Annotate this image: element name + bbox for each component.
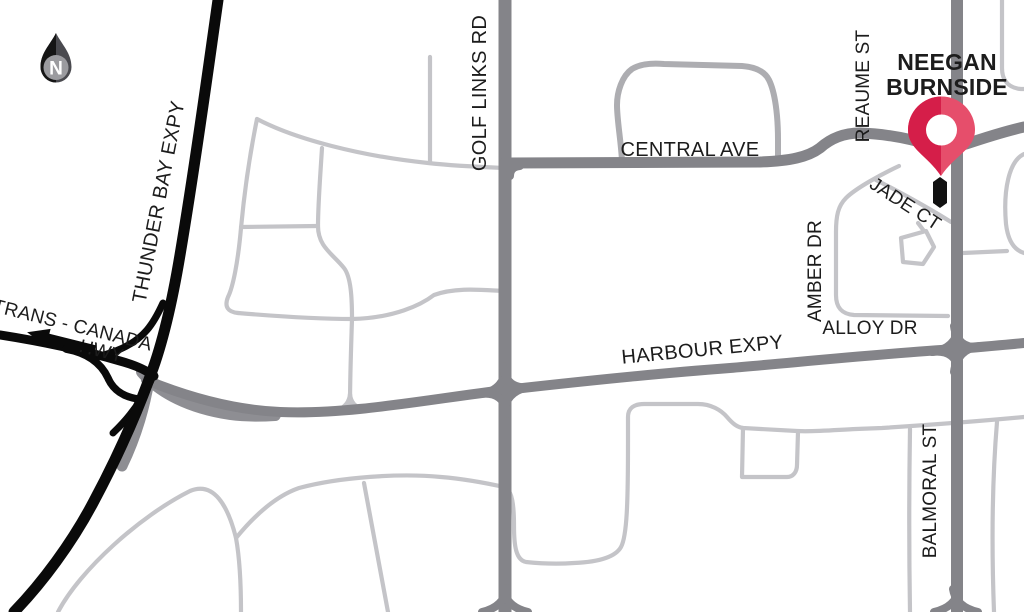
street-block-top xyxy=(257,119,504,168)
road-harbour-expy xyxy=(146,343,1024,412)
location-pin xyxy=(908,96,975,208)
street-se-rect xyxy=(742,428,798,477)
compass-letter: N xyxy=(49,59,63,80)
road-thunder-bay-expy xyxy=(14,0,218,612)
street-se-vert2 xyxy=(993,422,997,612)
label-reaume-st: REAUME ST xyxy=(853,29,874,142)
street-sw-c xyxy=(364,483,388,612)
label-golf-links-rd: GOLF LINKS RD xyxy=(469,15,491,171)
map-canvas: N THUNDER BAY EXPY TRANS - CANADA HWY GO… xyxy=(0,0,1024,612)
street-ne-curve xyxy=(1005,154,1024,253)
street-block-left xyxy=(226,119,257,313)
street-small-loop xyxy=(901,231,934,264)
label-central-ave: CENTRAL AVE xyxy=(621,139,760,161)
destination-line1: NEEGAN xyxy=(897,49,997,75)
street-to-harbour xyxy=(350,319,352,404)
destination-line2: BURNSIDE xyxy=(886,74,1008,100)
road-labels: THUNDER BAY EXPY TRANS - CANADA HWY GOLF… xyxy=(0,15,945,558)
label-jade-ct: JADE CT xyxy=(865,174,944,236)
street-east-stub xyxy=(963,251,1007,253)
label-balmoral-st: BALMORAL ST xyxy=(920,424,941,559)
destination-label: NEEGAN BURNSIDE xyxy=(886,49,1008,100)
street-block-cross xyxy=(241,226,318,227)
compass-north-icon: N xyxy=(41,33,72,83)
building-marker-icon xyxy=(933,177,947,208)
pin-hole xyxy=(926,115,957,146)
label-amber-dr: AMBER DR xyxy=(805,220,826,322)
street-map: N THUNDER BAY EXPY TRANS - CANADA HWY GO… xyxy=(0,0,1024,612)
street-block-bottom xyxy=(238,290,504,319)
label-alloy-dr: ALLOY DR xyxy=(822,318,917,339)
street-se-loop xyxy=(506,404,1024,564)
street-se-vert1 xyxy=(909,429,910,612)
street-block-mid xyxy=(318,148,352,319)
fillet xyxy=(510,166,520,176)
